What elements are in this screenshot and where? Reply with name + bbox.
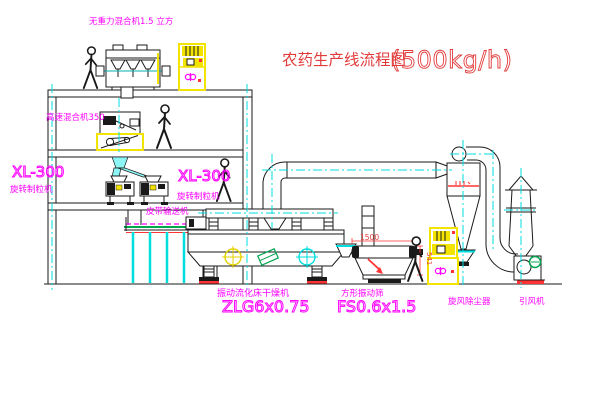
y-split-chute	[112, 157, 150, 177]
label-dryer-model: ZLG6x0.75	[222, 297, 310, 316]
label-granulator-right-name: 旋转制粒机	[177, 191, 220, 202]
label-sieve-model: FS0.6x1.5	[337, 297, 416, 316]
roof-slab	[48, 90, 252, 97]
label-no-gravity-mixer: 无重力混合机1.5 立方	[89, 16, 173, 27]
label-cyclone: 旋风除尘器	[448, 296, 491, 307]
mixer-discharge-spout	[121, 87, 133, 98]
fluid-bed-dryer	[186, 206, 374, 284]
induced-draft-fan	[514, 256, 545, 284]
label-granulator-left-model: XL-300	[12, 163, 64, 181]
worker-figure	[157, 105, 171, 148]
process-flow-diagram: 无重力混合机1.5 立方 高速混合机350 XL-300 旋转制粒机 XL-30…	[0, 0, 600, 403]
dim-sieve-outlet-height: 541	[425, 252, 433, 265]
worker-figure	[84, 47, 97, 88]
label-high-speed-mixer: 高速混合机350	[46, 112, 105, 123]
exhaust-duct	[263, 162, 450, 209]
granulator-down-chute	[128, 210, 141, 225]
label-granulator-right-model: XL-300	[178, 167, 230, 185]
diagram-capacity: (500kg/h)	[391, 46, 512, 74]
label-belt-conveyor: 皮带输送机	[146, 206, 189, 217]
dim-sieve-length: 1500	[360, 233, 379, 242]
granulator-right	[140, 176, 168, 205]
dryer-exhaust-funnel	[264, 218, 286, 229]
conveyor-legs	[133, 232, 184, 283]
cad-canvas: 无重力混合机1.5 立方 高速混合机350 XL-300 旋转制粒机 XL-30…	[0, 0, 600, 403]
label-granulator-left-name: 旋转制粒机	[10, 184, 53, 195]
diagram-title: 农药生产线流程图	[282, 51, 406, 69]
label-fan: 引风机	[519, 296, 545, 307]
second-floor-slab	[48, 150, 252, 157]
granulator-left	[106, 176, 134, 205]
control-cabinet-1	[179, 44, 205, 90]
